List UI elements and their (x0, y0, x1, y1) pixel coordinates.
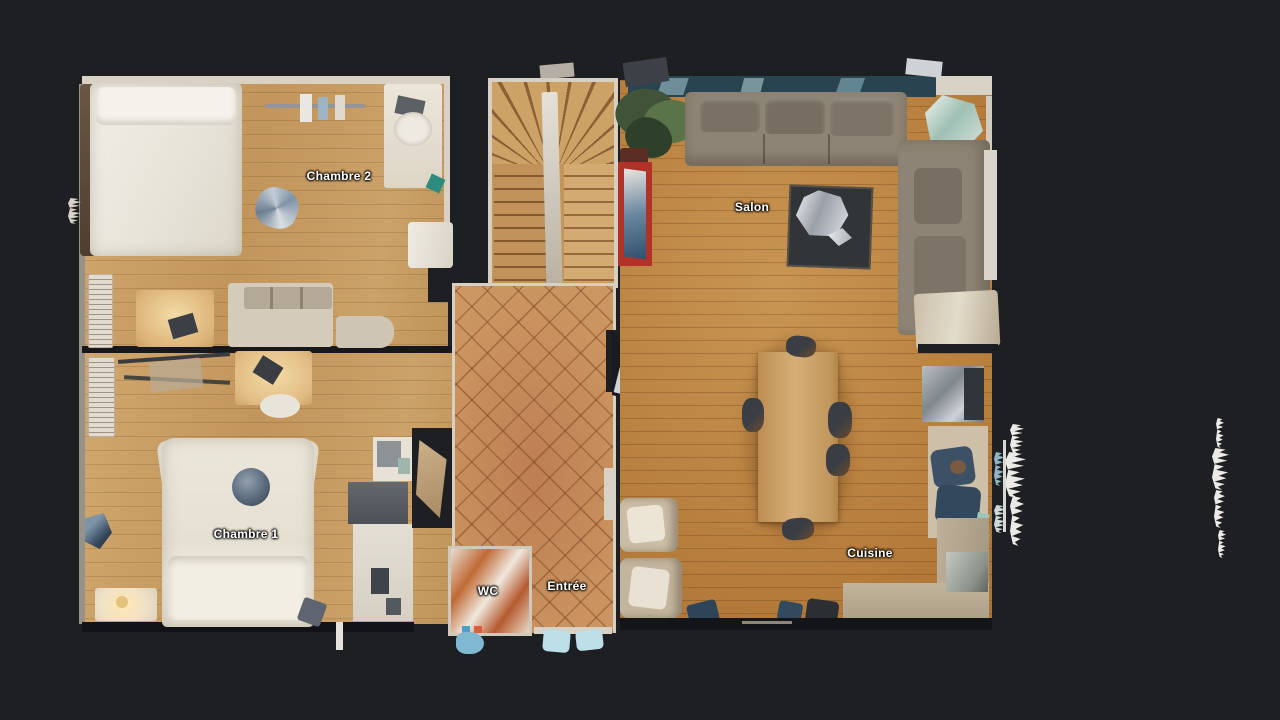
room-cuisine[interactable] (700, 380, 990, 624)
room-chambre1[interactable] (85, 352, 452, 624)
scan-artifact (1010, 424, 1024, 454)
scan-artifact (1010, 496, 1024, 546)
room-label-salon: Salon (735, 201, 769, 213)
staircase-region[interactable] (488, 78, 618, 288)
room-label-entree: Entrée (547, 580, 586, 592)
scan-fragment (539, 63, 574, 80)
room-label-chambre2: Chambre 2 (307, 170, 372, 182)
scan-artifact (1218, 530, 1226, 558)
room-label-chambre1: Chambre 1 (214, 528, 279, 540)
room-chambre2[interactable] (85, 78, 448, 346)
scan-artifact (1216, 418, 1224, 448)
room-label-cuisine: Cuisine (847, 547, 892, 559)
room-label-wc: WC (478, 585, 499, 597)
scan-fragment (905, 58, 942, 78)
scan-artifact (336, 622, 343, 650)
scan-artifact (1214, 490, 1225, 528)
scan-artifact (1003, 440, 1006, 532)
floorplan-view: Chambre 2 Salon Chambre 1 Cuisine WC Ent… (0, 0, 1280, 720)
armchair-cushion (628, 566, 671, 610)
room-salon[interactable] (620, 80, 992, 370)
scan-artifact (1212, 448, 1229, 490)
armchair-cushion (626, 504, 666, 544)
scan-artifact (1005, 452, 1026, 498)
